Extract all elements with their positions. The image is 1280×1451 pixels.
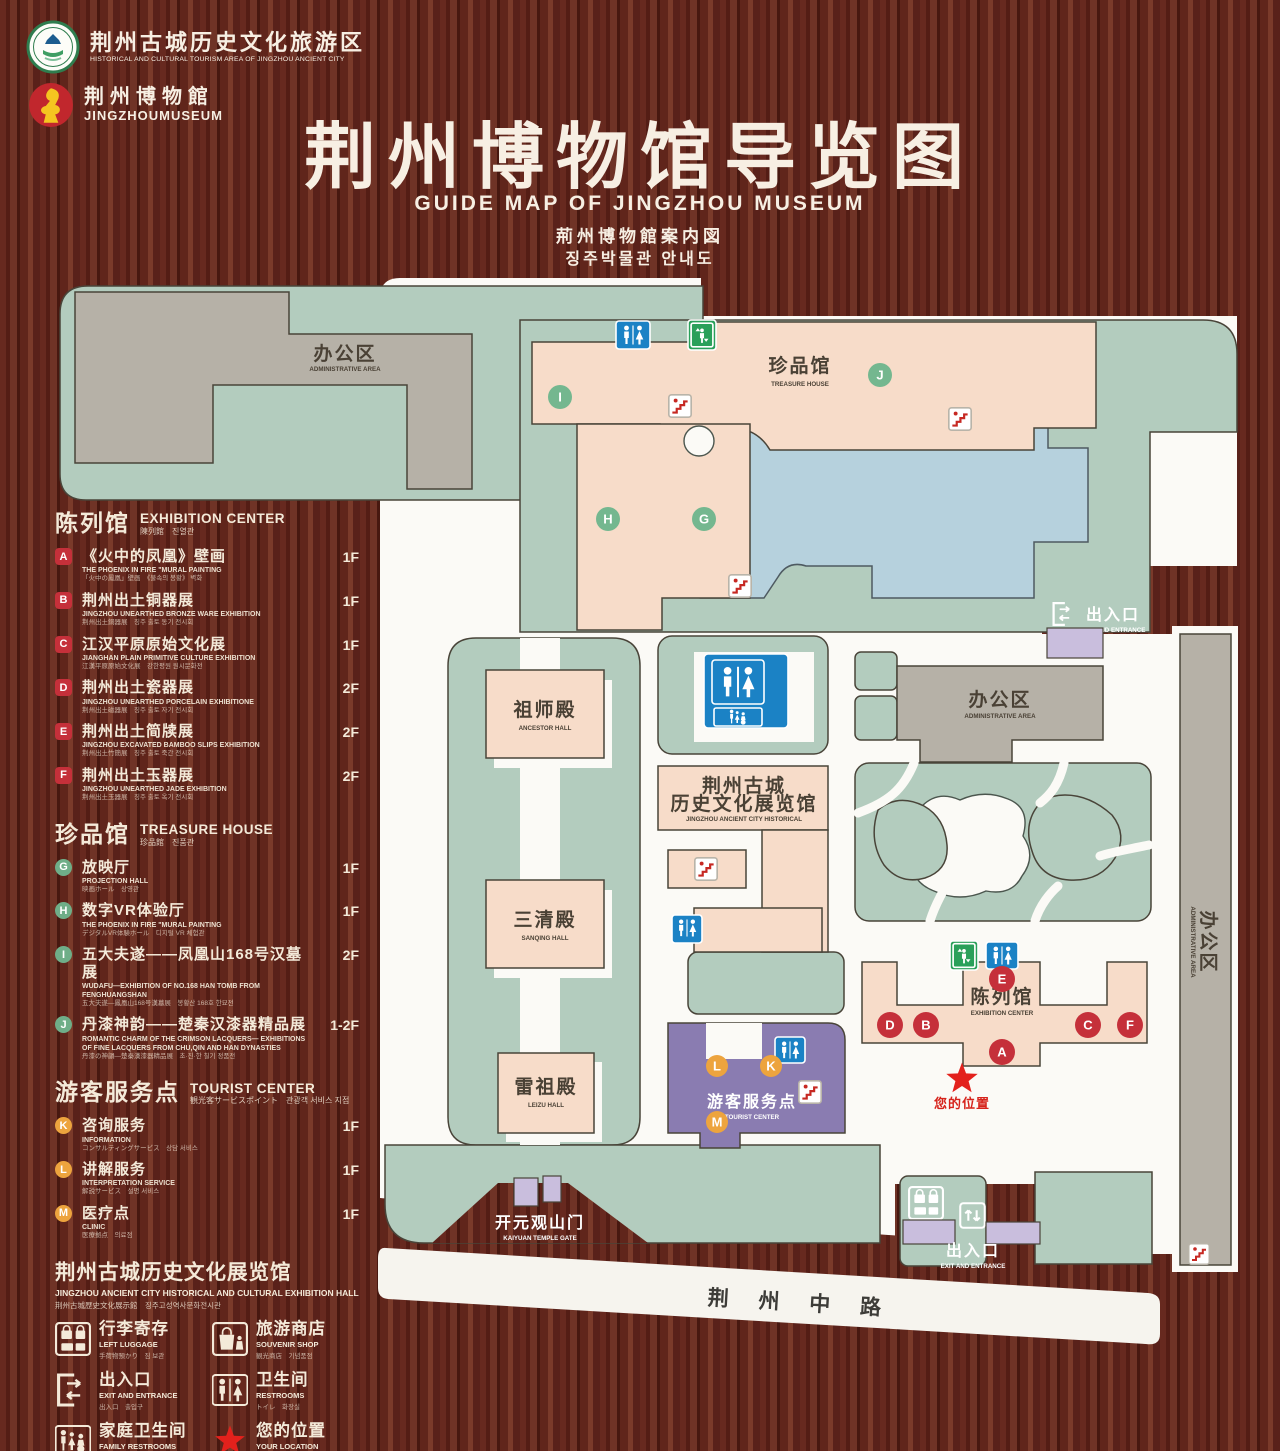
floor-label: 2F [343,947,359,963]
item-name-en: CLINIC [82,1223,315,1232]
item-name-sub: 荆州出土竹簡展 징주 출토 죽간 전시회 [82,750,315,758]
section-tourist-center: 游客服务点 TOURIST CENTER 観光客サービスポイント 관광객 서비스… [55,1073,361,1107]
icon-label: 旅游商店 [256,1321,326,1338]
excenter-label-en: EXHIBITION CENTER [971,1010,1034,1017]
area-logo-subtitle: HISTORICAL AND CULTURAL TOURISM AREA OF … [90,56,365,64]
marker-B: B [913,1012,939,1038]
exit-entrance-icon [55,1372,91,1408]
section-title-sub: 陳列館 진열관 [140,527,285,536]
marker-badge: A [55,548,72,565]
marker-L: L [706,1055,728,1077]
elevator-icon [688,320,716,350]
legend-item-J: J 1-2F 丹漆神韵——楚秦汉漆器精品展 ROMANTIC CHARM OF … [55,1016,361,1061]
marker-G: G [692,507,716,531]
exit-bottom-label: 出入口 [946,1241,1000,1260]
tourist-label-en: TOURIST CENTER [725,1114,780,1121]
legend-item-F: F 2F 荆州出土玉器展 JINGZHOU UNEARTHED JADE EXH… [55,767,361,803]
section-treasure-house: 珍品馆 TREASURE HOUSE 珍品館 진품관 [55,815,361,849]
hall-note: 荆州古城历史文化展览馆 JINGZHOU ANCIENT CITY HISTOR… [55,1255,361,1311]
item-name-en: INTERPRETATION SERVICE [82,1179,315,1188]
item-name-sub: デジタルVR体験ホール 디지털 VR 체험관 [82,930,315,938]
floor-label: 2F [343,724,359,740]
section-title: 游客服务点 [55,1073,180,1107]
item-name-en: PROJECTION HALL [82,877,315,886]
item-name: 五大夫遂——凤凰山168号汉墓展 [82,946,315,981]
wood-inlet-top [701,272,1240,316]
marker-badge: E [55,723,72,740]
hall-note-sub: 荆州古城歴史文化展示館 징주고성역사문화전시관 [55,1300,361,1311]
stairs-icon [1189,1244,1210,1265]
left-luggage-icon [55,1321,91,1357]
item-name: 江汉平原原始文化展 [82,636,315,653]
section-title-sub: 珍品館 진품관 [140,838,273,847]
legend-item-B: B 1F 荆州出土铜器展 JINGZHOU UNEARTHED BRONZE W… [55,592,361,628]
svg-text:B: B [921,1018,930,1033]
treasure-label-en: TREASURE HOUSE [771,381,829,388]
svg-text:I: I [558,390,562,405]
stairs-icon [949,408,971,430]
icon-legend: 行李寄存LEFT LUGGAGE手荷物預かり 짐 보관 旅游商店SOUVENIR… [55,1321,361,1451]
marker-badge: F [55,767,72,784]
icon-label-en: LEFT LUGGAGE [99,1340,169,1349]
section-title-sub: 観光客サービスポイント 관광객 서비스 지점 [190,1096,349,1105]
souvenir-shop-icon [212,1321,248,1357]
tourist-label: 游客服务点 [707,1092,797,1111]
admin-right-label: 办公区 [968,688,1031,711]
item-name-en: INFORMATION [82,1136,315,1145]
item-name-en: THE PHOENIX IN FIRE "MURAL PAINTING [82,566,315,575]
item-name: 讲解服务 [82,1161,315,1178]
section-title-en: EXHIBITION CENTER [140,511,285,527]
marker-E: E [989,966,1015,992]
admin-strip-label: 办公区 [1197,910,1220,973]
item-name: 荆州出土铜器展 [82,592,315,609]
marker-badge: L [55,1161,72,1178]
your-location-icon [212,1423,248,1451]
admin-strip-label-en: ADMINISTRATIVE AREA [1189,906,1196,978]
legend-cell-restrooms: 卫生间RESTROOMSトイレ 화장실 [212,1372,361,1412]
stairs-icon [695,858,717,880]
item-name-en: JINGZHOU UNEARTHED PORCELAIN EXHIBITIONE [82,698,315,707]
legend-item-D: D 2F 荆州出土瓷器展 JINGZHOU UNEARTHED PORCELAI… [55,679,361,715]
legend-item-E: E 2F 荆州出土简牍展 JINGZHOU EXCAVATED BAMBOO S… [55,723,361,759]
svg-text:D: D [885,1018,894,1033]
hall-note-en: JINGZHOU ANCIENT CITY HISTORICAL AND CUL… [55,1288,361,1298]
legend-cell-souvenir-shop: 旅游商店SOUVENIR SHOP観光商店 기념품점 [212,1321,361,1361]
marker-F: F [1117,1012,1143,1038]
marker-badge: B [55,592,72,609]
svg-text:C: C [1083,1018,1093,1033]
icon-label-sub: 出入口 출입구 [99,1401,177,1411]
floor-label: 1F [343,1118,359,1134]
tourism-area-logo-icon [26,20,80,74]
marker-H: H [596,507,620,531]
icon-label-en: SOUVENIR SHOP [256,1340,326,1349]
building-exhibition-hall: 荆州古城 历史文化展览馆 JINGZHOU ANCIENT CITY HISTO… [658,766,828,952]
marker-K: K [760,1055,782,1077]
floor-label: 1F [343,549,359,565]
building-leizu-hall: 雷祖殿 LEIZU HALL [498,1053,602,1142]
hall-note-title: 荆州古城历史文化展览馆 [55,1261,292,1284]
legend-cell-family-restrooms: 家庭卫生间FAMILY RESTROOMS家庭用トイレ 가족 화장실 [55,1423,204,1451]
admin-top-label: 办公区 [313,342,376,365]
marker-A: A [989,1039,1015,1065]
admin-top-label-en: ADMINISTRATIVE AREA [309,366,381,373]
building-ancestor-hall: 祖师殿 ANCESTOR HALL [486,670,612,768]
svg-text:J: J [876,368,883,383]
gate-label-en: KAIYUAN TEMPLE GATE [503,1235,576,1242]
sanqing-label-en: SANQING HALL [521,935,568,942]
item-name: 荆州出土简牍展 [82,723,315,740]
ancestor-label-en: ANCESTOR HALL [519,725,572,732]
icon-label-en: EXIT AND ENTRANCE [99,1391,177,1400]
icon-label: 您的位置 [256,1423,333,1440]
marker-badge: M [55,1205,72,1222]
icon-label: 行李寄存 [99,1321,169,1338]
legend-item-A: A 1F 《火中的凤凰》壁画 THE PHOENIX IN FIRE "MURA… [55,548,361,584]
svg-text:E: E [998,972,1007,987]
floor-label: 1F [343,1206,359,1222]
icon-label-sub: 手荷物預かり 짐 보관 [99,1350,169,1360]
icon-label-en: FAMILY RESTROOMS [99,1442,187,1451]
area-logo-row: 荆州古城历史文化旅游区 HISTORICAL AND CULTURAL TOUR… [26,20,365,74]
item-name: 荆州出土玉器展 [82,767,315,784]
restroom-icon [986,942,1018,969]
hall-label-en1: JINGZHOU ANCIENT CITY HISTORICAL [686,816,802,823]
section-title: 陈列馆 [55,504,130,538]
treasure-label: 珍品馆 [768,354,831,377]
floor-label: 1F [343,593,359,609]
building-restrooms [704,654,788,728]
area-logo-title: 荆州古城历史文化旅游区 [90,30,365,55]
svg-text:G: G [699,512,709,527]
svg-text:A: A [997,1045,1007,1060]
stairs-icon [669,395,691,417]
your-location-label: 您的位置 [934,1096,990,1111]
icon-label-en: YOUR LOCATION [256,1442,333,1451]
item-name: 数字VR体验厅 [82,902,315,919]
leizu-label-en: LEIZU HALL [528,1102,564,1109]
marker-badge: G [55,859,72,876]
item-name-sub: コンサルティングサービス 상담 서비스 [82,1145,315,1153]
item-name-sub: 「火中の鳳凰」壁画 《불속의 봉황》 벽화 [82,575,315,583]
item-name-en: JINGZHOU UNEARTHED JADE EXHIBITION [82,785,315,794]
legend-item-I: I 2F 五大夫遂——凤凰山168号汉墓展 WUDAFU—EXHIBITION … [55,946,361,1008]
item-name-sub: 荆州出土磁器展 징주 출토 자기 전시회 [82,707,315,715]
item-name: 放映厅 [82,859,315,876]
svg-text:F: F [1126,1018,1134,1033]
exit-bottom-label-en: EXIT AND ENTRANCE [941,1263,1006,1270]
item-name-sub: 解説サービス 설명 서비스 [82,1188,315,1196]
marker-badge: I [55,946,72,963]
section-title-en: TOURIST CENTER [190,1081,349,1097]
ancestor-label: 祖师殿 [512,698,576,721]
item-name-sub: 荆州出土銅器展 징주 출토 동기 전시회 [82,619,315,627]
legend-item-C: C 1F 江汉平原原始文化展 JIANGHAN PLAIN PRIMITIVE … [55,636,361,672]
restrooms-icon [212,1372,248,1408]
building-sanqing-hall: 三清殿 SANQING HALL [486,880,612,978]
marker-D: D [877,1012,903,1038]
floor-label: 1F [343,903,359,919]
item-name: 《火中的凤凰》壁画 [82,548,315,565]
stairs-icon [729,575,751,597]
icon-label-sub: トイレ 화장실 [256,1401,309,1411]
svg-text:H: H [603,512,612,527]
icon-label-en: RESTROOMS [256,1391,309,1400]
section-title: 珍品馆 [55,815,130,849]
gate-label: 开元观山门 [495,1213,585,1232]
marker-J: J [868,363,892,387]
restroom-icon [616,321,650,349]
restroom-icon [672,915,702,943]
floor-label: 1F [343,637,359,653]
hall-label-2: 历史文化展览馆 [670,792,817,815]
icon-label-sub: 観光商店 기념품점 [256,1350,326,1360]
svg-text:L: L [713,1059,721,1074]
marker-badge: C [55,636,72,653]
legend-panel: 陈列馆 EXHIBITION CENTER 陳列館 진열관 A 1F 《火中的凤… [55,492,361,1451]
legend-item-K: K 1F 咨询服务 INFORMATION コンサルティングサービス 상담 서비… [55,1117,361,1153]
elevator-icon [950,941,978,970]
exit-top-label: 出入口 [1086,605,1140,624]
item-name: 荆州出土瓷器展 [82,679,315,696]
item-name: 医疗点 [82,1205,315,1222]
section-exhibition-center: 陈列馆 EXHIBITION CENTER 陳列館 진열관 [55,504,361,538]
sanqing-label: 三清殿 [513,908,576,931]
marker-badge: J [55,1016,72,1033]
floor-label: 2F [343,680,359,696]
svg-text:K: K [766,1059,776,1074]
marker-I: I [548,385,572,409]
svg-text:M: M [712,1115,723,1130]
marker-badge: D [55,679,72,696]
item-name-sub: 江漢平原原始文化展 강한평원 원시문화전 [82,663,315,671]
icon-label: 卫生间 [256,1372,309,1389]
stairs-icon [799,1081,821,1103]
floor-label: 1-2F [330,1017,359,1033]
item-name-en: JIANGHAN PLAIN PRIMITIVE CULTURE EXHIBIT… [82,654,315,663]
page-title-ja: 荊州博物館案内図 [0,222,1280,247]
icon-label: 家庭卫生间 [99,1423,187,1440]
page-title-ko: 징주박물관 안내도 [0,245,1280,269]
legend-item-M: M 1F 医疗点 CLINIC 医療拠点 의료점 [55,1205,361,1241]
legend-item-H: H 1F 数字VR体验厅 THE PHOENIX IN FIRE "MURAL … [55,902,361,938]
item-name-sub: 丹漆の神韻—楚秦漢漆器精品展 초·진·한 칠기 정품전 [82,1053,315,1061]
item-name-en: THE PHOENIX IN FIRE "MURAL PAINTING [82,921,315,930]
admin-right-label-en: ADMINISTRATIVE AREA [964,713,1036,720]
page-title: 荆州博物馆导览图 [0,98,1280,203]
item-name-sub: 映画ホール 상영관 [82,886,315,894]
legend-cell-left-luggage: 行李寄存LEFT LUGGAGE手荷物預かり 짐 보관 [55,1321,204,1361]
marker-M: M [706,1111,728,1133]
floor-label: 1F [343,1162,359,1178]
item-name-en: ROMANTIC CHARM OF THE CRIMSON LACQUERS— … [82,1035,315,1053]
item-name-en: JINGZHOU UNEARTHED BRONZE WARE EXHIBITIO… [82,610,315,619]
marker-badge: K [55,1117,72,1134]
guide-map-page: 办公区 ADMINISTRATIVE AREA 办公区 ADMINISTRATI… [0,0,1280,1451]
floor-label: 2F [343,768,359,784]
item-name-en: WUDAFU—EXHIBITION OF NO.168 HAN TOMB FRO… [82,982,315,1000]
section-title-en: TREASURE HOUSE [140,822,273,838]
building-tourist-center: 游客服务点 TOURIST CENTER [668,1023,845,1148]
marker-C: C [1075,1012,1101,1038]
family-restrooms-icon [55,1423,91,1451]
item-name-sub: 医療拠点 의료점 [82,1232,315,1240]
legend-item-L: L 1F 讲解服务 INTERPRETATION SERVICE 解説サービス … [55,1161,361,1197]
legend-cell-exit: 出入口EXIT AND ENTRANCE出入口 출입구 [55,1372,204,1412]
floor-label: 1F [343,860,359,876]
leizu-label: 雷祖殿 [514,1075,577,1098]
item-name: 丹漆神韵——楚秦汉漆器精品展 [82,1016,315,1033]
item-name-sub: 荆州出土玉器展 징주 출토 옥기 전시회 [82,794,315,802]
marker-badge: H [55,902,72,919]
legend-item-G: G 1F 放映厅 PROJECTION HALL 映画ホール 상영관 [55,859,361,895]
building-admin-strip: 办公区 ADMINISTRATIVE AREA [1172,626,1238,1272]
page-title-en: GUIDE MAP OF JINGZHOU MUSEUM [0,192,1280,216]
item-name-sub: 五大夫遂—鳳凰山168号漢墓展 봉황산 168호 한묘전 [82,1000,315,1008]
legend-cell-your-location: 您的位置YOUR LOCATIONあなたの位置 당신의 위치 [212,1423,361,1451]
icon-label: 出入口 [99,1372,177,1389]
item-name: 咨询服务 [82,1117,315,1134]
